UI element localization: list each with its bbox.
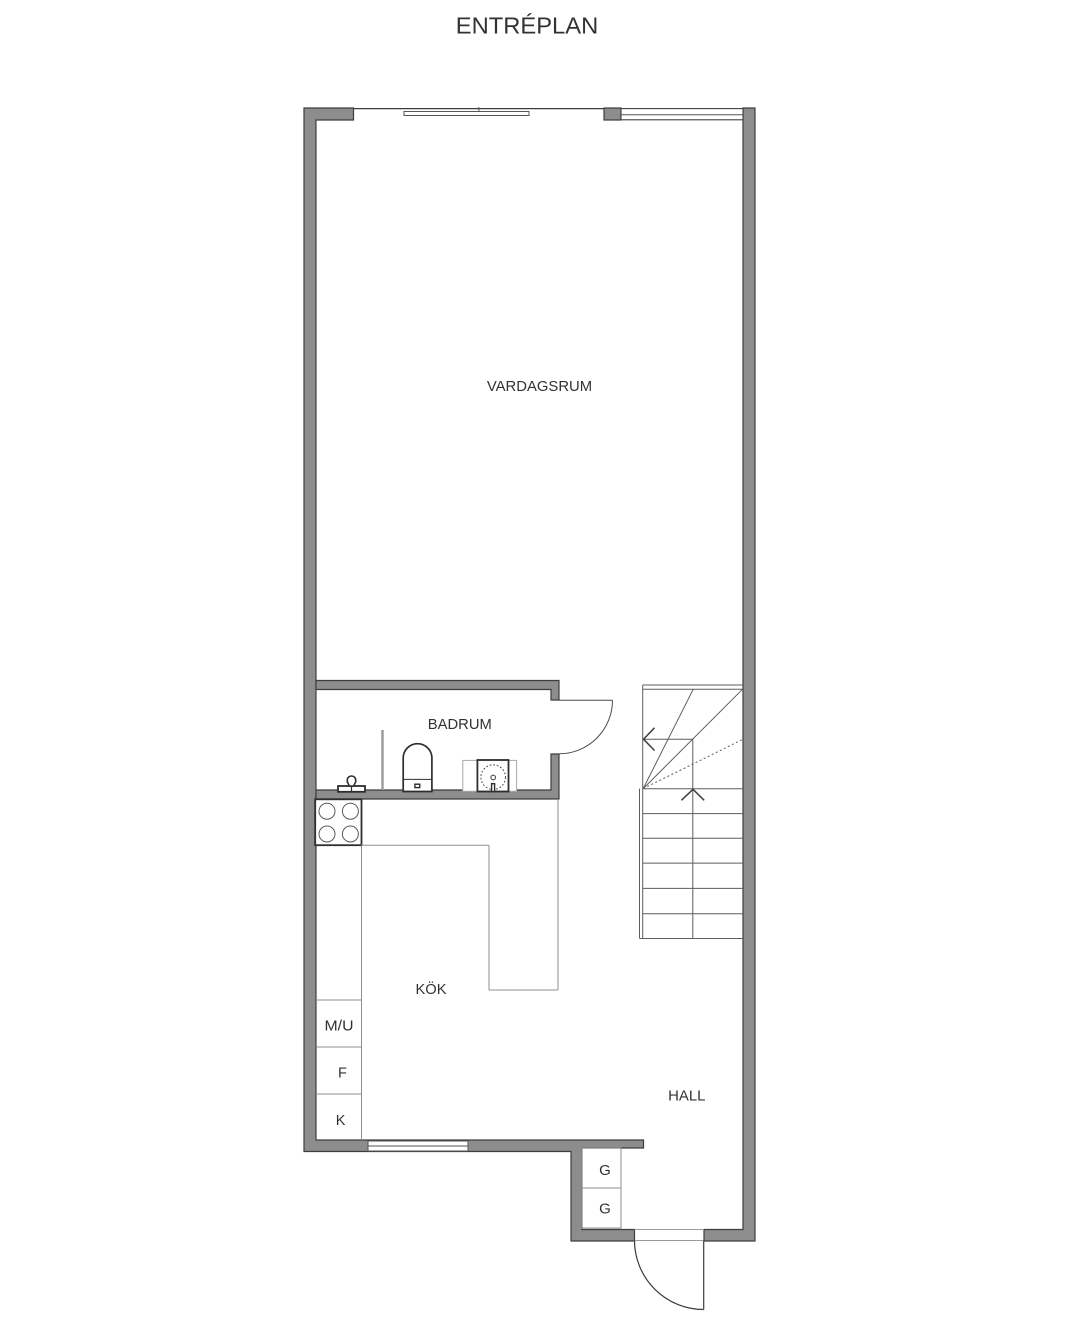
svg-text:KÖK: KÖK <box>416 980 447 998</box>
svg-text:ENTRÉPLAN: ENTRÉPLAN <box>456 12 599 38</box>
svg-text:G: G <box>599 1162 611 1179</box>
svg-text:G: G <box>599 1201 611 1218</box>
svg-text:M/U: M/U <box>325 1018 354 1034</box>
svg-text:HALL: HALL <box>668 1088 705 1105</box>
svg-text:VARDAGSRUM: VARDAGSRUM <box>487 379 592 395</box>
svg-text:K: K <box>336 1113 346 1129</box>
svg-text:BADRUM: BADRUM <box>428 717 492 733</box>
svg-text:F: F <box>338 1065 347 1081</box>
